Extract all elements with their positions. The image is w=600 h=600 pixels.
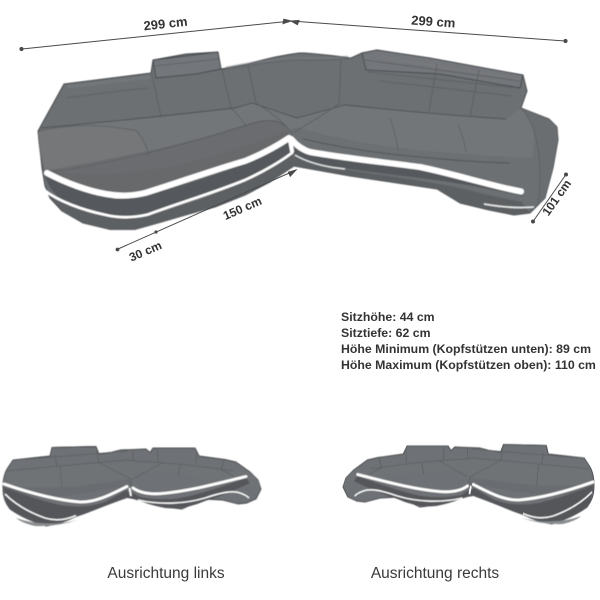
svg-text:Ausrichtung rechts: Ausrichtung rechts [371,565,500,582]
svg-text:Sitztiefe: 62 cm: Sitztiefe: 62 cm [341,326,431,340]
svg-text:Höhe Minimum (Kopfstützen unte: Höhe Minimum (Kopfstützen unten): 89 cm [341,342,591,356]
svg-text:Höhe Maximum (Kopfstützen oben: Höhe Maximum (Kopfstützen oben): 110 cm [341,358,596,372]
svg-text:299 cm: 299 cm [143,14,188,34]
svg-text:Ausrichtung links: Ausrichtung links [107,565,224,582]
svg-text:Sitzhöhe: 44 cm: Sitzhöhe: 44 cm [341,310,435,324]
svg-text:299 cm: 299 cm [411,13,456,31]
